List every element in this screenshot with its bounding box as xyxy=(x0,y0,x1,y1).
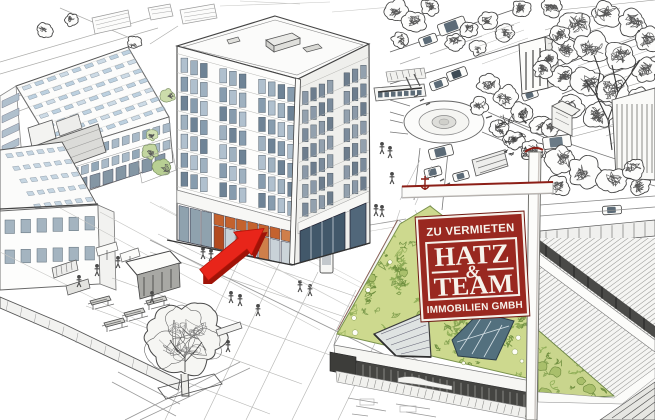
svg-text:TEAM: TEAM xyxy=(433,268,514,302)
